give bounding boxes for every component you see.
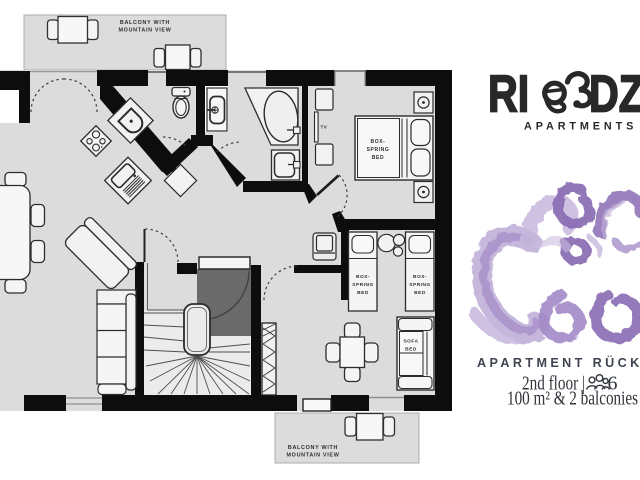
svg-text:RI: RI: [488, 65, 529, 122]
svg-text:SOFA: SOFA: [403, 339, 418, 345]
svg-text:MOUNTAIN VIEW: MOUNTAIN VIEW: [118, 28, 171, 34]
svg-text:BALCONY WITH: BALCONY WITH: [288, 445, 338, 451]
svg-text:BED: BED: [414, 290, 426, 296]
svg-text:BOX-: BOX-: [356, 274, 370, 280]
svg-text:SPRING: SPRING: [352, 282, 373, 288]
svg-text:SPRING: SPRING: [367, 147, 390, 153]
svg-text:DZ: DZ: [589, 65, 640, 122]
svg-text:BOX-: BOX-: [413, 274, 427, 280]
svg-text:APARTMENT RÜCKEN: APARTMENT RÜCKEN: [477, 355, 640, 370]
svg-text:BED: BED: [372, 155, 384, 161]
svg-text:APARTMENTS: APARTMENTS: [524, 121, 637, 133]
svg-text:TV: TV: [321, 125, 328, 130]
svg-text:MOUNTAIN VIEW: MOUNTAIN VIEW: [286, 453, 339, 459]
svg-text:100 m² & 2 balconies: 100 m² & 2 balconies: [507, 388, 638, 410]
svg-text:SPRING: SPRING: [409, 282, 430, 288]
svg-text:BOX-: BOX-: [371, 139, 386, 145]
svg-text:BALCONY WITH: BALCONY WITH: [120, 20, 170, 26]
svg-text:BED: BED: [405, 347, 417, 353]
svg-text:BED: BED: [357, 290, 369, 296]
